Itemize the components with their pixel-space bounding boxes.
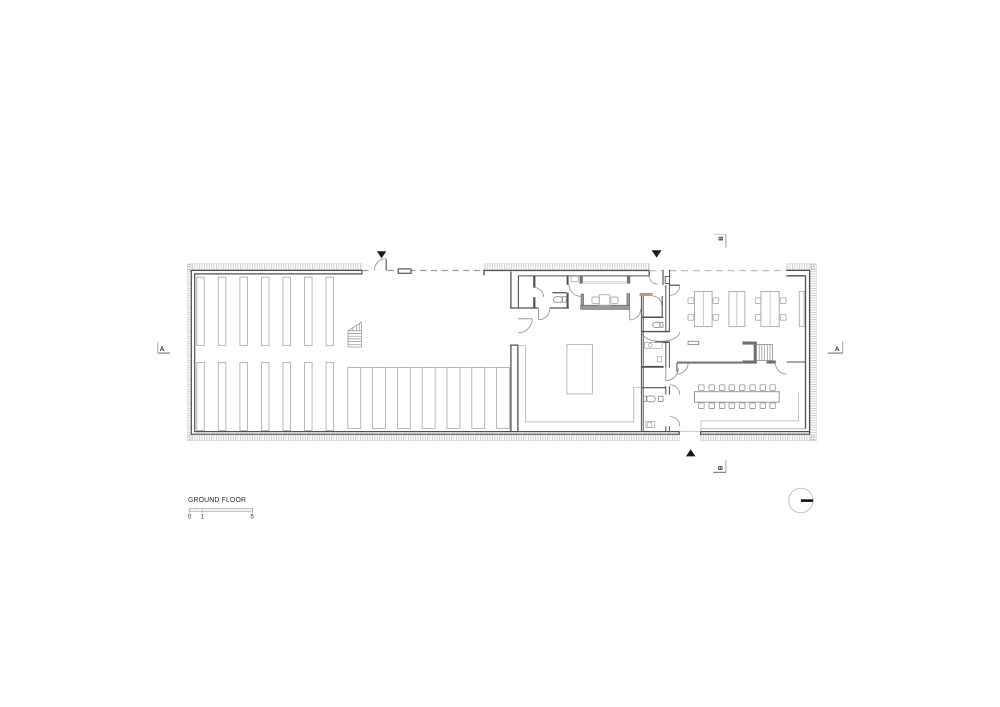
svg-text:0: 0 <box>188 514 192 521</box>
svg-text:B: B <box>718 465 725 470</box>
svg-text:1: 1 <box>201 514 205 521</box>
svg-text:B: B <box>718 236 725 241</box>
svg-text:A: A <box>160 346 165 353</box>
svg-text:GROUND FLOOR: GROUND FLOOR <box>188 497 246 504</box>
svg-text:5: 5 <box>250 514 254 521</box>
svg-text:A: A <box>835 346 840 353</box>
